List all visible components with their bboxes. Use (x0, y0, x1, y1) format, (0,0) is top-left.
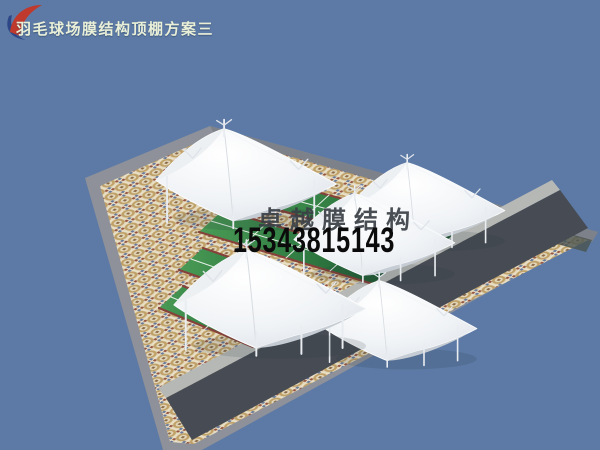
page-title: 羽毛球场膜结构顶棚方案三 (16, 18, 214, 39)
watermark-phone: 15343815143 (233, 221, 395, 261)
render-image: 羽毛球场膜结构顶棚方案三 卓越膜结构 15343815143 (0, 0, 600, 450)
